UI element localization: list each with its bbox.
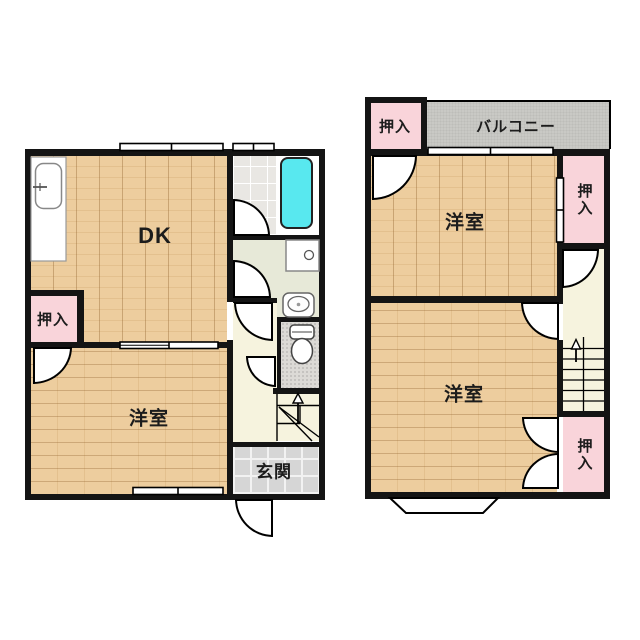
genkan-step-edge <box>233 442 319 447</box>
label-yoshitsu-2f-lower: 洋室 <box>444 380 484 407</box>
stairs-1f-floor <box>277 394 319 441</box>
wall <box>557 411 610 417</box>
wall <box>273 388 325 394</box>
wall <box>25 149 325 156</box>
label-dk: DK <box>138 223 172 249</box>
wall <box>25 149 31 500</box>
wall <box>604 149 610 499</box>
wall <box>277 317 319 322</box>
bathtub-surround <box>276 156 319 235</box>
label-oshiire-1f: 押入 <box>37 309 69 330</box>
wall <box>25 290 84 296</box>
wall <box>277 322 281 388</box>
label-yoshitsu-1f: 洋室 <box>129 404 169 431</box>
wall <box>227 340 233 494</box>
label-balcony: バルコニー <box>476 116 556 137</box>
label-genkan: 玄関 <box>256 458 292 483</box>
door-arc-entrance <box>235 499 273 537</box>
label-oshiire-2f-bottom-right: 押入 <box>574 438 595 472</box>
floorplan-canvas: DK 洋室 押入 玄関 押入 バルコニー 洋室 押入 洋室 押入 <box>0 0 640 640</box>
wall <box>365 492 610 499</box>
wall <box>77 290 84 348</box>
wall <box>421 97 427 149</box>
label-oshiire-2f-top-left: 押入 <box>379 116 411 137</box>
wall <box>557 340 563 417</box>
wall <box>319 149 325 500</box>
wall <box>365 97 427 103</box>
wall <box>557 156 563 180</box>
wall <box>25 494 325 500</box>
stairs-2f-floor <box>563 337 604 411</box>
label-yoshitsu-2f-upper: 洋室 <box>445 208 485 235</box>
bay-window <box>390 498 498 513</box>
toilet-room-floor <box>281 322 319 388</box>
label-oshiire-2f-right: 押入 <box>574 183 595 217</box>
